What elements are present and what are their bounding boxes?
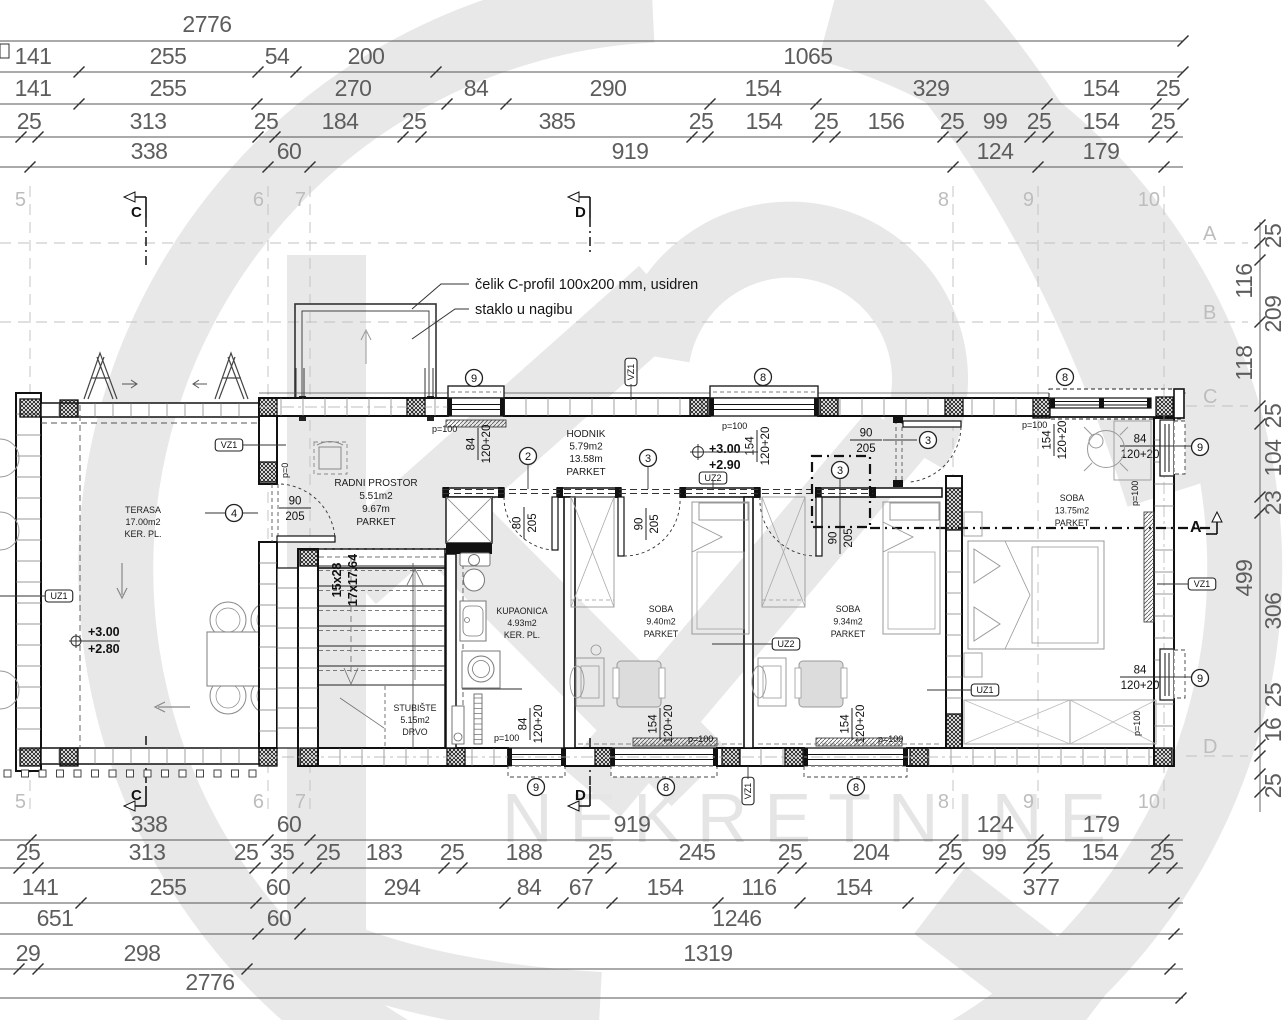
svg-text:919: 919 bbox=[612, 138, 649, 164]
svg-text:2: 2 bbox=[525, 451, 531, 463]
svg-text:D: D bbox=[575, 204, 586, 221]
svg-text:60: 60 bbox=[266, 874, 291, 900]
svg-text:25: 25 bbox=[254, 108, 279, 134]
svg-text:p=100: p=100 bbox=[494, 733, 519, 743]
svg-text:C: C bbox=[1203, 386, 1217, 408]
svg-text:+3.00: +3.00 bbox=[709, 442, 741, 456]
svg-text:8: 8 bbox=[853, 782, 859, 794]
svg-text:8: 8 bbox=[760, 372, 766, 384]
svg-text:385: 385 bbox=[539, 108, 576, 134]
svg-text:VZ1: VZ1 bbox=[1194, 579, 1211, 589]
svg-text:UZ1: UZ1 bbox=[50, 591, 67, 601]
svg-text:A: A bbox=[1203, 223, 1217, 245]
svg-text:p=100: p=100 bbox=[878, 734, 903, 744]
svg-text:154: 154 bbox=[746, 108, 784, 134]
svg-text:154: 154 bbox=[648, 714, 660, 734]
svg-text:16: 16 bbox=[1260, 718, 1286, 743]
svg-text:60: 60 bbox=[277, 811, 302, 837]
svg-text:120+20: 120+20 bbox=[663, 705, 675, 744]
svg-text:84: 84 bbox=[464, 75, 489, 101]
svg-text:10: 10 bbox=[1138, 189, 1160, 211]
svg-text:154: 154 bbox=[745, 436, 757, 456]
svg-text:35: 35 bbox=[270, 839, 295, 865]
svg-text:25: 25 bbox=[402, 108, 427, 134]
svg-text:377: 377 bbox=[1023, 874, 1060, 900]
svg-text:329: 329 bbox=[913, 75, 950, 101]
svg-text:17x17.64: 17x17.64 bbox=[346, 554, 360, 606]
svg-text:120+20: 120+20 bbox=[481, 425, 493, 464]
svg-text:25: 25 bbox=[689, 108, 714, 134]
svg-text:8: 8 bbox=[938, 189, 949, 211]
svg-text:D: D bbox=[575, 787, 586, 804]
svg-text:HODNIK5.79m213.58mPARKET: HODNIK5.79m213.58mPARKET bbox=[566, 429, 605, 478]
svg-text:9: 9 bbox=[1023, 189, 1034, 211]
svg-text:7: 7 bbox=[295, 791, 306, 813]
svg-text:25: 25 bbox=[938, 839, 963, 865]
svg-text:9: 9 bbox=[1197, 442, 1203, 454]
svg-text:84: 84 bbox=[1134, 434, 1147, 446]
svg-text:60: 60 bbox=[267, 905, 292, 931]
svg-text:124: 124 bbox=[977, 811, 1015, 837]
svg-text:120+20: 120+20 bbox=[1121, 449, 1160, 461]
svg-text:205: 205 bbox=[843, 528, 855, 547]
svg-text:4: 4 bbox=[231, 508, 237, 520]
svg-text:1065: 1065 bbox=[783, 43, 832, 69]
svg-text:9: 9 bbox=[1023, 791, 1034, 813]
svg-text:1319: 1319 bbox=[683, 940, 732, 966]
svg-text:183: 183 bbox=[366, 839, 403, 865]
svg-text:141: 141 bbox=[15, 75, 52, 101]
svg-text:205: 205 bbox=[285, 511, 304, 523]
svg-text:VZ1: VZ1 bbox=[626, 364, 636, 381]
svg-text:VZ1: VZ1 bbox=[743, 783, 753, 800]
svg-text:118: 118 bbox=[1231, 345, 1257, 380]
svg-text:p=100: p=100 bbox=[432, 424, 457, 434]
svg-text:54: 54 bbox=[265, 43, 290, 69]
svg-text:15x28: 15x28 bbox=[330, 563, 344, 598]
svg-text:25: 25 bbox=[1027, 108, 1052, 134]
svg-text:23: 23 bbox=[1260, 491, 1286, 516]
svg-text:179: 179 bbox=[1083, 138, 1120, 164]
svg-text:p=100: p=100 bbox=[1130, 481, 1140, 506]
svg-text:294: 294 bbox=[384, 874, 422, 900]
svg-text:p=100: p=100 bbox=[1132, 711, 1142, 736]
svg-text:25: 25 bbox=[1151, 108, 1176, 134]
svg-text:25: 25 bbox=[440, 839, 465, 865]
svg-text:124: 124 bbox=[977, 138, 1015, 164]
svg-text:120+20: 120+20 bbox=[1057, 421, 1069, 460]
svg-text:99: 99 bbox=[982, 839, 1007, 865]
svg-text:25: 25 bbox=[1260, 404, 1286, 429]
svg-text:25: 25 bbox=[234, 839, 259, 865]
svg-text:205: 205 bbox=[527, 513, 539, 532]
svg-text:120+20: 120+20 bbox=[760, 427, 772, 466]
svg-text:651: 651 bbox=[37, 905, 74, 931]
svg-text:154: 154 bbox=[1083, 75, 1121, 101]
svg-text:156: 156 bbox=[868, 108, 905, 134]
svg-text:25: 25 bbox=[1260, 224, 1286, 249]
svg-text:25: 25 bbox=[1260, 774, 1286, 799]
svg-text:VZ1: VZ1 bbox=[221, 440, 238, 450]
svg-text:120+20: 120+20 bbox=[533, 705, 545, 744]
svg-text:255: 255 bbox=[150, 43, 187, 69]
svg-text:2776: 2776 bbox=[185, 969, 234, 995]
svg-text:60: 60 bbox=[277, 138, 302, 164]
svg-text:25: 25 bbox=[940, 108, 965, 134]
svg-text:84: 84 bbox=[518, 717, 530, 730]
svg-text:84: 84 bbox=[1134, 665, 1147, 677]
svg-text:338: 338 bbox=[131, 811, 168, 837]
svg-text:6: 6 bbox=[253, 791, 264, 813]
svg-text:10: 10 bbox=[1138, 791, 1160, 813]
svg-text:TERASA17.00m2KER. PL.: TERASA17.00m2KER. PL. bbox=[124, 505, 161, 539]
svg-text:8: 8 bbox=[663, 782, 669, 794]
svg-text:255: 255 bbox=[150, 75, 187, 101]
svg-text:8: 8 bbox=[938, 791, 949, 813]
svg-text:188: 188 bbox=[506, 839, 543, 865]
svg-text:9: 9 bbox=[471, 373, 477, 385]
svg-text:C: C bbox=[131, 787, 142, 804]
svg-text:116: 116 bbox=[741, 874, 776, 900]
svg-text:5: 5 bbox=[15, 791, 26, 813]
svg-text:25: 25 bbox=[16, 839, 41, 865]
svg-text:25: 25 bbox=[17, 108, 42, 134]
svg-text:313: 313 bbox=[130, 108, 167, 134]
svg-text:9: 9 bbox=[1197, 673, 1203, 685]
svg-text:25: 25 bbox=[814, 108, 839, 134]
svg-text:3: 3 bbox=[925, 435, 931, 447]
svg-text:6: 6 bbox=[253, 189, 264, 211]
svg-text:D: D bbox=[1203, 736, 1217, 758]
svg-text:p=100: p=100 bbox=[1022, 420, 1047, 430]
svg-text:204: 204 bbox=[853, 839, 891, 865]
svg-text:čelik C-profil 100x200 mm, usi: čelik C-profil 100x200 mm, usidren bbox=[475, 277, 698, 293]
svg-text:7: 7 bbox=[295, 189, 306, 211]
svg-text:141: 141 bbox=[15, 43, 52, 69]
svg-text:205: 205 bbox=[856, 443, 875, 455]
svg-text:25: 25 bbox=[1156, 75, 1181, 101]
svg-text:255: 255 bbox=[150, 874, 187, 900]
svg-text:80: 80 bbox=[512, 517, 524, 530]
svg-text:p=100: p=100 bbox=[688, 734, 713, 744]
svg-text:499: 499 bbox=[1231, 560, 1257, 597]
svg-text:2776: 2776 bbox=[182, 11, 231, 37]
svg-text:290: 290 bbox=[590, 75, 627, 101]
svg-text:154: 154 bbox=[1042, 430, 1054, 450]
svg-text:154: 154 bbox=[1082, 839, 1120, 865]
svg-text:p=0: p=0 bbox=[280, 463, 290, 478]
svg-text:245: 245 bbox=[679, 839, 716, 865]
svg-text:84: 84 bbox=[466, 437, 478, 450]
svg-text:25: 25 bbox=[1150, 839, 1175, 865]
svg-text:298: 298 bbox=[124, 940, 161, 966]
svg-text:8: 8 bbox=[1062, 372, 1068, 384]
svg-text:B: B bbox=[1203, 302, 1216, 324]
svg-text:p=100: p=100 bbox=[722, 421, 747, 431]
svg-text:338: 338 bbox=[131, 138, 168, 164]
svg-text:179: 179 bbox=[1083, 811, 1120, 837]
svg-text:25: 25 bbox=[316, 839, 341, 865]
svg-text:141: 141 bbox=[22, 874, 59, 900]
svg-text:154: 154 bbox=[1083, 108, 1121, 134]
svg-text:25: 25 bbox=[588, 839, 613, 865]
svg-text:84: 84 bbox=[517, 874, 542, 900]
svg-text:99: 99 bbox=[983, 108, 1008, 134]
svg-text:90: 90 bbox=[634, 518, 646, 531]
svg-text:3: 3 bbox=[837, 465, 843, 477]
svg-text:90: 90 bbox=[289, 496, 302, 508]
svg-text:205: 205 bbox=[649, 514, 661, 533]
svg-text:+2.80: +2.80 bbox=[88, 642, 120, 656]
svg-text:306: 306 bbox=[1260, 593, 1286, 630]
svg-text:+3.00: +3.00 bbox=[88, 625, 120, 639]
svg-text:270: 270 bbox=[335, 75, 372, 101]
svg-text:313: 313 bbox=[129, 839, 166, 865]
svg-text:5: 5 bbox=[15, 189, 26, 211]
svg-text:90: 90 bbox=[860, 428, 873, 440]
svg-text:154: 154 bbox=[836, 874, 874, 900]
svg-text:120+20: 120+20 bbox=[1121, 680, 1160, 692]
svg-text:154: 154 bbox=[647, 874, 685, 900]
svg-text:120+20: 120+20 bbox=[855, 705, 867, 744]
svg-text:154: 154 bbox=[745, 75, 783, 101]
svg-text:104: 104 bbox=[1260, 439, 1286, 477]
svg-text:184: 184 bbox=[322, 108, 360, 134]
svg-text:1246: 1246 bbox=[712, 905, 761, 931]
svg-text:919: 919 bbox=[614, 811, 651, 837]
svg-text:UZ1: UZ1 bbox=[976, 685, 993, 695]
svg-text:29: 29 bbox=[16, 940, 41, 966]
svg-text:3: 3 bbox=[645, 453, 651, 465]
svg-text:staklo u nagibu: staklo u nagibu bbox=[475, 302, 573, 318]
svg-text:UZ2: UZ2 bbox=[777, 639, 794, 649]
svg-text:67: 67 bbox=[569, 874, 594, 900]
svg-text:25: 25 bbox=[1260, 683, 1286, 708]
svg-text:200: 200 bbox=[348, 43, 385, 69]
svg-text:209: 209 bbox=[1260, 296, 1286, 333]
svg-text:90: 90 bbox=[828, 532, 840, 545]
svg-text:+2.90: +2.90 bbox=[709, 458, 741, 472]
svg-text:C: C bbox=[131, 204, 142, 221]
svg-text:154: 154 bbox=[840, 714, 852, 734]
svg-text:9: 9 bbox=[533, 782, 539, 794]
svg-text:25: 25 bbox=[1026, 839, 1051, 865]
svg-text:25: 25 bbox=[778, 839, 803, 865]
svg-text:116: 116 bbox=[1231, 263, 1257, 298]
